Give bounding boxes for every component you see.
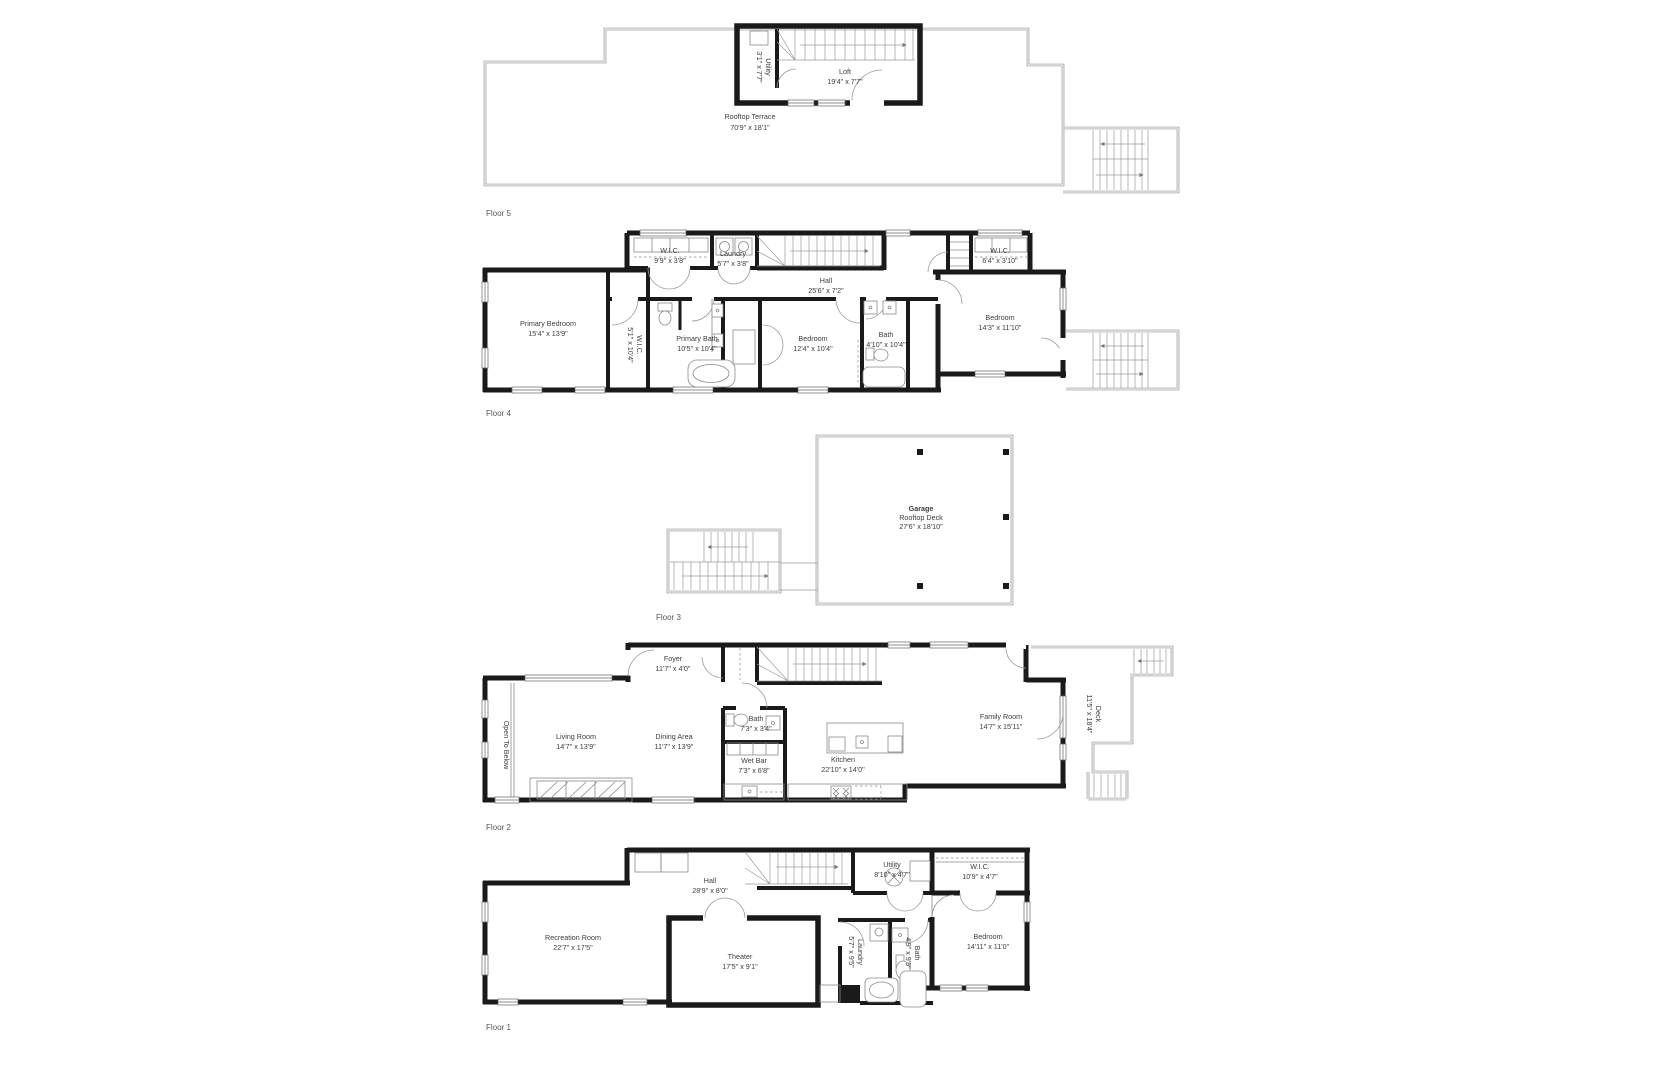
room-label-primary-bedroom: Primary Bedroom — [520, 319, 576, 328]
room-dims-bath-f1: 4'9" x 9'5" — [904, 937, 913, 969]
room-label-family-room: Family Room — [980, 712, 1022, 721]
room-label-foyer: Foyer — [664, 654, 683, 663]
room-label-living-room: Living Room — [556, 732, 596, 741]
room-dims-hall-f1: 28'9" x 8'0" — [692, 886, 728, 895]
room-dims-wic2-f4: 6'4" x 3'10" — [982, 256, 1018, 265]
floorplan-page: Utility 3'1" x 7'7" Loft 19'4" x 7'7" Ro… — [0, 0, 1665, 1080]
room-label-bath-f4: Bath — [879, 330, 894, 339]
room-label-theater: Theater — [728, 952, 753, 961]
floor-3-label: Floor 3 — [656, 613, 681, 622]
room-dims-wicv-f4: 5'1" x 10'4" — [626, 327, 635, 363]
room-dims-deck-f2: 11'5" x 18'4" — [1085, 695, 1094, 734]
room-label-bath-f2: Bath — [749, 714, 764, 723]
room-label-wet-bar: Wet Bar — [741, 756, 767, 765]
room-label-laundry-f4: Laundry — [720, 249, 746, 258]
room-label-rooftop-terrace: Rooftop Terrace — [724, 112, 775, 121]
room-dims-hall-f4: 25'6" x 7'2" — [808, 286, 844, 295]
loft-stairs-icon — [777, 29, 915, 60]
room-dims-recreation-room: 22'7" x 17'5" — [553, 943, 593, 952]
room-dims-bedroom2-f4: 12'4" x 10'4" — [793, 344, 833, 353]
room-label-bath-f1: Bath — [913, 946, 922, 961]
room-label-kitchen: Kitchen — [831, 755, 855, 764]
deck-stairs-icon — [1094, 649, 1166, 797]
room-label-wicv-f4: W.I.C. — [635, 335, 644, 355]
room-dims-family-room: 14'7" x 15'11" — [980, 722, 1023, 731]
room-label-wic1-f4: W.I.C. — [660, 246, 680, 255]
room-dims-kitchen: 22'10" x 14'0" — [821, 765, 865, 774]
room-dims-utility-f5: 3'1" x 7'7" — [755, 51, 764, 83]
room-dims-primary-bath: 10'5" x 10'4" — [677, 344, 717, 353]
floor-3-plan: Garage Rooftop Deck 27'6" x 18'10" Floor… — [656, 436, 1012, 622]
room-dims-theater: 17'5" x 9'1" — [722, 962, 758, 971]
room-dims-bedroom3-f4: 14'3" x 11'10" — [979, 323, 1022, 332]
door-arc — [777, 69, 796, 88]
room-dims-laundry-f1: 5'7" x 9'5" — [847, 936, 856, 968]
floor-1-plan: Hall 28'9" x 8'0" Utility 8'10" x 4'7" W… — [482, 848, 1030, 1032]
room-dims-bedroom-f1: 14'11" x 11'0" — [967, 942, 1010, 951]
hall-stairs-icon — [757, 236, 880, 266]
room-dims-primary-bedroom: 15'4" x 13'9" — [528, 329, 568, 338]
room-label-bedroom-f1: Bedroom — [973, 932, 1002, 941]
room-label-open-to-below: Open To Below — [502, 721, 511, 770]
floor-5-plan: Utility 3'1" x 7'7" Loft 19'4" x 7'7" Ro… — [485, 26, 1178, 218]
utility-shelf — [750, 31, 768, 45]
room-dims-wet-bar: 7'3" x 6'8" — [738, 766, 770, 775]
stairs-icon — [757, 647, 882, 681]
room-label-deck-f2: Deck — [1094, 706, 1103, 723]
floorplan-canvas: Utility 3'1" x 7'7" Loft 19'4" x 7'7" Ro… — [0, 0, 1665, 1080]
room-dims-foyer: 11'7" x 4'0" — [656, 664, 691, 673]
room-label-laundry-f1: Laundry — [856, 939, 865, 965]
room-dims-laundry-f4: 5'7" x 3'8" — [717, 259, 749, 268]
floor-4-plan: W.I.C. 9'9" x 3'8" Laundry 5'7" x 3'8" H… — [482, 230, 1178, 418]
room-label-hall-f4: Hall — [820, 276, 833, 285]
room-dims-wic-f1: 10'9" x 4'7" — [962, 872, 998, 881]
room-dims-living-room: 14'7" x 13'9" — [556, 742, 596, 751]
room-label-hall-f1: Hall — [704, 876, 717, 885]
room-label-wic-f1: W.I.C. — [970, 862, 990, 871]
room-dims-wic1-f4: 9'9" x 3'8" — [654, 256, 686, 265]
floor-1-label: Floor 1 — [486, 1023, 511, 1032]
room-label-garage: Garage — [909, 504, 934, 513]
room-dims-bath-f2: 7'3" x 3'4" — [740, 724, 772, 733]
room-dims-bath-f4: 4'10" x 10'4" — [866, 340, 906, 349]
room-label-recreation-room: Recreation Room — [545, 933, 601, 942]
room-dims-dining-area: 11'7" x 13'9" — [655, 742, 694, 751]
room-dims-rooftop-terrace: 70'9" x 18'1" — [730, 123, 770, 132]
stairs-icon — [745, 852, 853, 888]
closet-cubbies — [634, 238, 1027, 266]
room-label-bedroom2-f4: Bedroom — [798, 334, 827, 343]
room-label-loft: Loft — [839, 67, 851, 76]
exterior-stairs-icon — [1093, 130, 1148, 190]
room-dims-loft: 19'4" x 7'7" — [827, 77, 863, 86]
room-dims-garage: 27'6" x 18'10" — [899, 522, 943, 531]
room-dims-utility-f1: 8'10" x 4'7" — [874, 870, 910, 879]
floor-2-label: Floor 2 — [486, 823, 511, 832]
room-label-bedroom3-f4: Bedroom — [985, 313, 1014, 322]
floor-2-plan: Foyer 11'7" x 4'0" Open To Below Living … — [482, 641, 1172, 832]
room-label-dining-area: Dining Area — [655, 732, 692, 741]
floor-5-label: Floor 5 — [486, 209, 511, 218]
room-label-utility-f5: Utility — [764, 58, 773, 76]
hall-cubbies — [635, 853, 688, 872]
room-label-wic2-f4: W.I.C. — [990, 246, 1010, 255]
floor-4-label: Floor 4 — [486, 409, 511, 418]
room-sublabel-garage: Rooftop Deck — [899, 513, 943, 522]
deck-stairs-icon — [670, 532, 817, 590]
room-label-primary-bath: Primary Bath — [676, 334, 718, 343]
room-label-utility-f1: Utility — [883, 860, 901, 869]
exterior-stairs-icon — [1093, 333, 1148, 388]
